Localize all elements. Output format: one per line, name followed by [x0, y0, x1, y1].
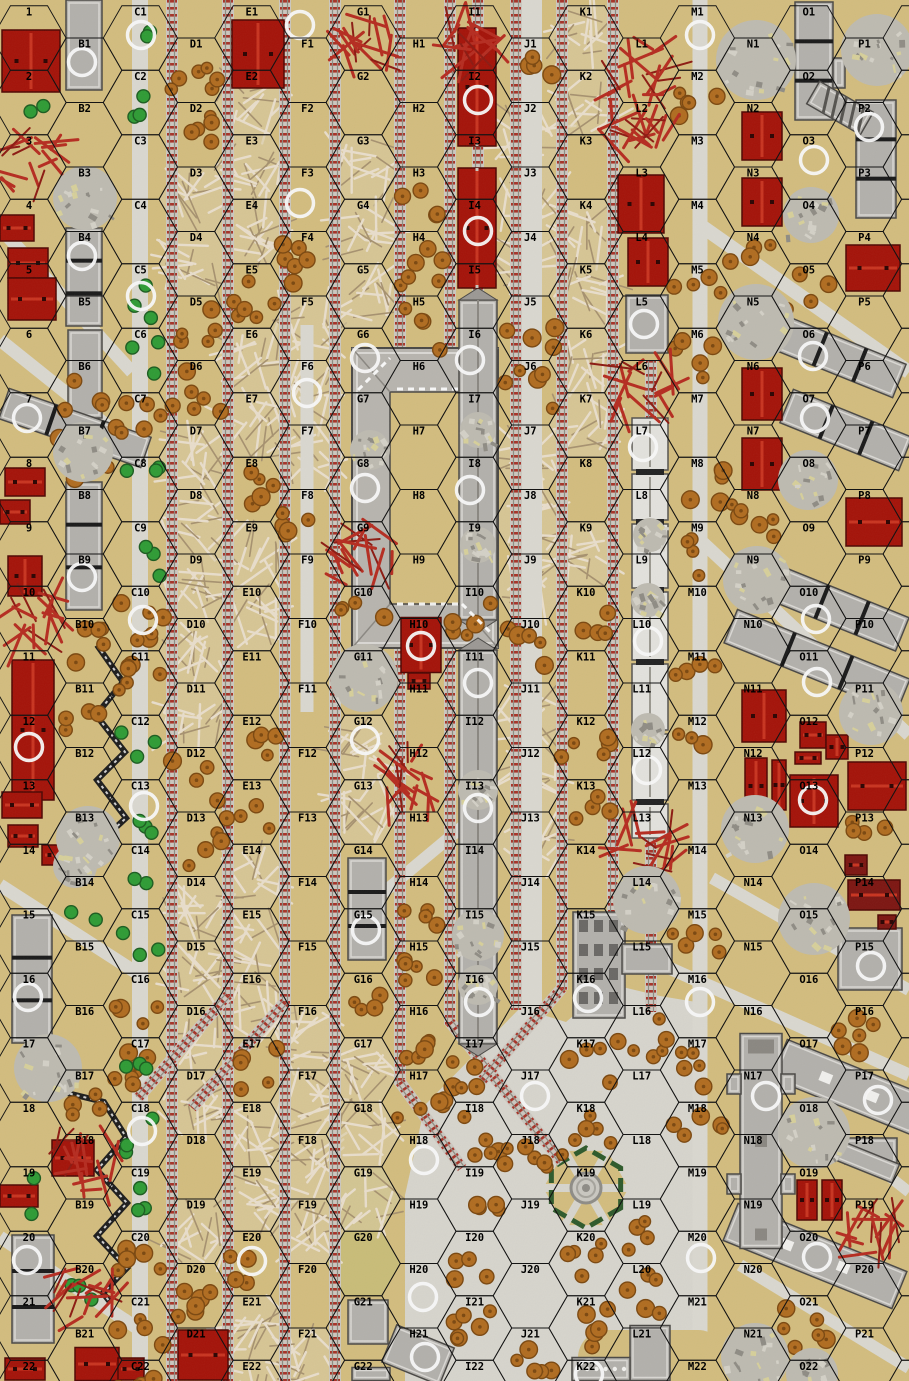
hex-label: G21: [354, 1296, 373, 1308]
hex-label: O5: [802, 264, 815, 276]
hex-label: O20: [799, 1232, 818, 1244]
hex-label: K4: [580, 200, 593, 212]
hex-label: F5: [301, 297, 314, 309]
hex-label: D8: [190, 490, 203, 502]
hex-label: E22: [242, 1361, 261, 1373]
hex-label: C13: [131, 780, 150, 792]
hex-label: O15: [799, 909, 818, 921]
hex-label: H18: [409, 1135, 428, 1147]
hex-label: F11: [298, 684, 317, 696]
hex-label: L1: [635, 39, 648, 51]
hex-label: G13: [354, 780, 373, 792]
hex-label: G19: [354, 1167, 373, 1179]
hex-label: N20: [744, 1264, 763, 1276]
hex-label: E5: [245, 264, 258, 276]
hex-label: M13: [688, 780, 707, 792]
hex-label: F9: [301, 555, 314, 567]
hex-label: H1: [413, 39, 426, 51]
hex-label: E21: [242, 1296, 261, 1308]
hex-label: F4: [301, 232, 314, 244]
hex-label: M19: [688, 1167, 707, 1179]
hex-label: E2: [245, 71, 258, 83]
hex-label: P5: [858, 297, 871, 309]
hex-label: O11: [799, 651, 818, 663]
hex-label: O8: [802, 458, 815, 470]
hex-label: N21: [744, 1329, 763, 1341]
hex-label: I7: [468, 393, 481, 405]
hex-label: F8: [301, 490, 314, 502]
hex-map-canvas: 12345678910111213141516171819202122B1B2B…: [0, 0, 909, 1381]
hex-label: D4: [190, 232, 203, 244]
hex-label: O12: [799, 716, 818, 728]
hex-label: M2: [691, 71, 704, 83]
hex-label: J8: [524, 490, 537, 502]
hex-label: 17: [23, 1038, 36, 1050]
hex-label: I14: [465, 845, 484, 857]
hex-label: N16: [744, 1006, 763, 1018]
hex-label: D16: [187, 1006, 206, 1018]
hex-label: F21: [298, 1329, 317, 1341]
hex-label: D17: [187, 1071, 206, 1083]
hex-label: F7: [301, 426, 314, 438]
hex-label: P1: [858, 39, 871, 51]
hex-label: E9: [245, 522, 258, 534]
hex-label: G14: [354, 845, 373, 857]
hex-label: I3: [468, 135, 481, 147]
hex-label: G11: [354, 651, 373, 663]
hex-label: J12: [521, 748, 540, 760]
hex-label: N7: [747, 426, 760, 438]
hex-label: P16: [855, 1006, 874, 1018]
hex-label: L2: [635, 103, 648, 115]
hex-label: D19: [187, 1200, 206, 1212]
hex-label: M6: [691, 329, 704, 341]
hex-label: L10: [632, 619, 651, 631]
hex-label: H3: [413, 168, 426, 180]
hex-label: B9: [78, 555, 91, 567]
hex-label: G1: [357, 6, 370, 18]
hex-label: N5: [747, 297, 760, 309]
hex-label: O22: [799, 1361, 818, 1373]
hex-label: B6: [78, 361, 91, 373]
hex-label: H6: [413, 361, 426, 373]
hex-label: K16: [577, 974, 596, 986]
hex-label: J21: [521, 1329, 540, 1341]
hex-label: G5: [357, 264, 370, 276]
hex-label: B5: [78, 297, 91, 309]
hex-label: I15: [465, 909, 484, 921]
hex-label: 18: [23, 1103, 36, 1115]
hex-label: N2: [747, 103, 760, 115]
hex-label: F15: [298, 942, 317, 954]
hex-label: D20: [187, 1264, 206, 1276]
hex-label: C4: [134, 200, 147, 212]
hex-label: L18: [632, 1135, 651, 1147]
hex-label: E7: [245, 393, 258, 405]
hex-label: C10: [131, 587, 150, 599]
hex-label: L17: [632, 1071, 651, 1083]
hex-label: B21: [75, 1329, 94, 1341]
hex-label: P18: [855, 1135, 874, 1147]
hex-label: N11: [744, 684, 763, 696]
hex-label: L14: [632, 877, 651, 889]
hex-label: M14: [688, 845, 707, 857]
hex-label: O19: [799, 1167, 818, 1179]
hex-label: I9: [468, 522, 481, 534]
hex-label: H21: [409, 1329, 428, 1341]
hex-label: B11: [75, 684, 94, 696]
hex-label: J1: [524, 39, 537, 51]
hex-label: H8: [413, 490, 426, 502]
hex-label: F10: [298, 619, 317, 631]
hex-label: H4: [413, 232, 426, 244]
hex-label: F18: [298, 1135, 317, 1147]
hex-label: J11: [521, 684, 540, 696]
hex-label: K13: [577, 780, 596, 792]
hex-label: P8: [858, 490, 871, 502]
hex-label: E18: [242, 1103, 261, 1115]
hex-label: O14: [799, 845, 818, 857]
hex-label: B8: [78, 490, 91, 502]
hex-label: O2: [802, 71, 815, 83]
hex-label: D18: [187, 1135, 206, 1147]
hex-label: F20: [298, 1264, 317, 1276]
hex-label: D13: [187, 813, 206, 825]
hex-label: L19: [632, 1200, 651, 1212]
hex-label: K15: [577, 909, 596, 921]
hex-label: G12: [354, 716, 373, 728]
hex-label: P12: [855, 748, 874, 760]
hex-label: B1: [78, 39, 91, 51]
hex-label: G7: [357, 393, 370, 405]
hex-label: B10: [75, 619, 94, 631]
hex-label: C8: [134, 458, 147, 470]
hex-label: 11: [23, 651, 36, 663]
hex-label: H17: [409, 1071, 428, 1083]
hex-label: D1: [190, 39, 203, 51]
hex-label: K11: [577, 651, 596, 663]
hex-label: D15: [187, 942, 206, 954]
hex-label: J17: [521, 1071, 540, 1083]
hex-label: I18: [465, 1103, 484, 1115]
hex-label: L13: [632, 813, 651, 825]
hex-label: K21: [577, 1296, 596, 1308]
hex-label: I8: [468, 458, 481, 470]
hex-label: D3: [190, 168, 203, 180]
hex-label: O21: [799, 1296, 818, 1308]
hex-label: I16: [465, 974, 484, 986]
hex-label: B3: [78, 168, 91, 180]
hex-label: F19: [298, 1200, 317, 1212]
hex-label: M9: [691, 522, 704, 534]
hex-label: 8: [26, 458, 32, 470]
hex-label: P19: [855, 1200, 874, 1212]
hex-label: D6: [190, 361, 203, 373]
hex-label: 12: [23, 716, 36, 728]
hex-label: O3: [802, 135, 815, 147]
hex-label: 22: [23, 1361, 36, 1373]
hex-label: F2: [301, 103, 314, 115]
hex-label: H20: [409, 1264, 428, 1276]
hex-label: C15: [131, 909, 150, 921]
hex-label: N15: [744, 942, 763, 954]
hex-label: E19: [242, 1167, 261, 1179]
hex-label: G4: [357, 200, 370, 212]
hex-label: E6: [245, 329, 258, 341]
hex-label: G17: [354, 1038, 373, 1050]
hex-label: P9: [858, 555, 871, 567]
hex-label: J10: [521, 619, 540, 631]
hex-label: 21: [23, 1296, 36, 1308]
hex-label: C12: [131, 716, 150, 728]
hex-label: P10: [855, 619, 874, 631]
hex-label: K3: [580, 135, 593, 147]
hex-label: H13: [409, 813, 428, 825]
hex-label: 1: [26, 6, 32, 18]
hex-label: D10: [187, 619, 206, 631]
hex-label: 3: [26, 135, 32, 147]
hex-label: L8: [635, 490, 648, 502]
hex-label: L7: [635, 426, 648, 438]
hex-label: M21: [688, 1296, 707, 1308]
hex-label: M3: [691, 135, 704, 147]
hex-label: I11: [465, 651, 484, 663]
hex-label: E1: [245, 6, 258, 18]
hex-label: C16: [131, 974, 150, 986]
hex-label: C20: [131, 1232, 150, 1244]
hex-label: C9: [134, 522, 147, 534]
hex-label: K10: [577, 587, 596, 599]
hex-label: M20: [688, 1232, 707, 1244]
hex-label: E17: [242, 1038, 261, 1050]
hex-label: H9: [413, 555, 426, 567]
hex-label: F14: [298, 877, 317, 889]
hex-label: N17: [744, 1071, 763, 1083]
hex-label: 10: [23, 587, 36, 599]
hex-label: M16: [688, 974, 707, 986]
hex-label: 15: [23, 909, 36, 921]
hex-label: B12: [75, 748, 94, 760]
hex-label: M15: [688, 909, 707, 921]
hex-label: H15: [409, 942, 428, 954]
hex-label: 13: [23, 780, 36, 792]
hex-label: L11: [632, 684, 651, 696]
hex-label: N10: [744, 619, 763, 631]
hex-label: B19: [75, 1200, 94, 1212]
hex-label: O16: [799, 974, 818, 986]
hex-label: H5: [413, 297, 426, 309]
hex-label: E8: [245, 458, 258, 470]
hex-label: 20: [23, 1232, 36, 1244]
hex-label: G16: [354, 974, 373, 986]
hex-label: G22: [354, 1361, 373, 1373]
hex-label: N1: [747, 39, 760, 51]
hex-label: K20: [577, 1232, 596, 1244]
hex-label: K12: [577, 716, 596, 728]
hex-label: O1: [802, 6, 815, 18]
hex-label: 2: [26, 71, 32, 83]
hex-label: H19: [409, 1200, 428, 1212]
hex-label: B7: [78, 426, 91, 438]
hex-label: P7: [858, 426, 871, 438]
hex-label: C7: [134, 393, 147, 405]
hex-label: J9: [524, 555, 537, 567]
hex-label: M18: [688, 1103, 707, 1115]
hex-label: O13: [799, 780, 818, 792]
hex-label: B13: [75, 813, 94, 825]
hex-label: L6: [635, 361, 648, 373]
hex-label: E10: [242, 587, 261, 599]
hex-label: I2: [468, 71, 481, 83]
hex-label: I4: [468, 200, 481, 212]
hex-label: 19: [23, 1167, 36, 1179]
hex-label: D5: [190, 297, 203, 309]
hex-label: C14: [131, 845, 150, 857]
hex-label: J16: [521, 1006, 540, 1018]
hex-label: P13: [855, 813, 874, 825]
hex-label: J15: [521, 942, 540, 954]
hex-label: H14: [409, 877, 428, 889]
hex-label: J14: [521, 877, 540, 889]
hex-label: G3: [357, 135, 370, 147]
hex-label: D9: [190, 555, 203, 567]
hex-label: B20: [75, 1264, 94, 1276]
hex-label: G8: [357, 458, 370, 470]
hex-label: B14: [75, 877, 94, 889]
hex-label: M17: [688, 1038, 707, 1050]
hex-label: F12: [298, 748, 317, 760]
hex-label: E12: [242, 716, 261, 728]
hex-label: K5: [580, 264, 593, 276]
hex-label: K7: [580, 393, 593, 405]
hex-label: K9: [580, 522, 593, 534]
hex-label: F6: [301, 361, 314, 373]
hex-label: P4: [858, 232, 871, 244]
hex-label: L5: [635, 297, 648, 309]
hex-label: I5: [468, 264, 481, 276]
hex-label: B17: [75, 1071, 94, 1083]
hex-label: M8: [691, 458, 704, 470]
hex-label: I19: [465, 1167, 484, 1179]
hex-label: J18: [521, 1135, 540, 1147]
hex-label: H2: [413, 103, 426, 115]
hex-label: E16: [242, 974, 261, 986]
hex-label: C3: [134, 135, 147, 147]
hex-label: B15: [75, 942, 94, 954]
hex-label: K1: [580, 6, 593, 18]
hex-label: O7: [802, 393, 815, 405]
hex-label: N19: [744, 1200, 763, 1212]
hex-label: J13: [521, 813, 540, 825]
hex-label: N3: [747, 168, 760, 180]
hex-label: 6: [26, 329, 32, 341]
hex-label: D2: [190, 103, 203, 115]
hex-label: K18: [577, 1103, 596, 1115]
hex-label: 14: [23, 845, 36, 857]
hex-label: D11: [187, 684, 206, 696]
hex-label: 16: [23, 974, 36, 986]
hex-label: P11: [855, 684, 874, 696]
hex-label: K22: [577, 1361, 596, 1373]
hex-label: G18: [354, 1103, 373, 1115]
hex-label: D12: [187, 748, 206, 760]
hex-label: O6: [802, 329, 815, 341]
hex-label: J19: [521, 1200, 540, 1212]
wargame-map-stage: 12345678910111213141516171819202122B1B2B…: [0, 0, 909, 1381]
hex-label: D7: [190, 426, 203, 438]
hex-label: J5: [524, 297, 537, 309]
hex-label: C5: [134, 264, 147, 276]
hex-label: C19: [131, 1167, 150, 1179]
hex-label: M4: [691, 200, 704, 212]
hex-label: E15: [242, 909, 261, 921]
hex-label: M22: [688, 1361, 707, 1373]
hex-label: O4: [802, 200, 815, 212]
hex-label: I10: [465, 587, 484, 599]
hex-label: I21: [465, 1296, 484, 1308]
hex-label: F17: [298, 1071, 317, 1083]
hex-label: J7: [524, 426, 537, 438]
hex-label: E13: [242, 780, 261, 792]
hex-label: C22: [131, 1361, 150, 1373]
hex-label: J2: [524, 103, 537, 115]
hex-label: H11: [409, 684, 428, 696]
hex-label: L21: [632, 1329, 651, 1341]
hex-label: J6: [524, 361, 537, 373]
hex-label: G10: [354, 587, 373, 599]
hex-label: I17: [465, 1038, 484, 1050]
hex-label: P15: [855, 942, 874, 954]
hex-label: I22: [465, 1361, 484, 1373]
hex-label: 4: [26, 200, 32, 212]
hex-label: M7: [691, 393, 704, 405]
hex-label: M10: [688, 587, 707, 599]
hex-label: E14: [242, 845, 261, 857]
hex-label: B4: [78, 232, 91, 244]
hex-label: L3: [635, 168, 648, 180]
hex-label: H12: [409, 748, 428, 760]
hex-label: 5: [26, 264, 32, 276]
hex-label: P21: [855, 1329, 874, 1341]
hex-label: B16: [75, 1006, 94, 1018]
hex-label: I13: [465, 780, 484, 792]
hex-label: O18: [799, 1103, 818, 1115]
hex-label: L15: [632, 942, 651, 954]
hex-label: C18: [131, 1103, 150, 1115]
hex-label: P2: [858, 103, 871, 115]
hex-label: N12: [744, 748, 763, 760]
hex-label: D21: [187, 1329, 206, 1341]
hex-label: N6: [747, 361, 760, 373]
hex-label: H10: [409, 619, 428, 631]
hex-label: N4: [747, 232, 760, 244]
hex-label: P14: [855, 877, 874, 889]
hex-label: C11: [131, 651, 150, 663]
hex-label: B2: [78, 103, 91, 115]
hex-label: N14: [744, 877, 763, 889]
hex-label: P3: [858, 168, 871, 180]
hex-label: N8: [747, 490, 760, 502]
hex-label: O10: [799, 587, 818, 599]
hex-label: E20: [242, 1232, 261, 1244]
hex-label: G20: [354, 1232, 373, 1244]
hex-label: K19: [577, 1167, 596, 1179]
hex-label: M5: [691, 264, 704, 276]
hex-label: K2: [580, 71, 593, 83]
hex-label: K6: [580, 329, 593, 341]
hex-label: K14: [577, 845, 596, 857]
hex-label: N9: [747, 555, 760, 567]
